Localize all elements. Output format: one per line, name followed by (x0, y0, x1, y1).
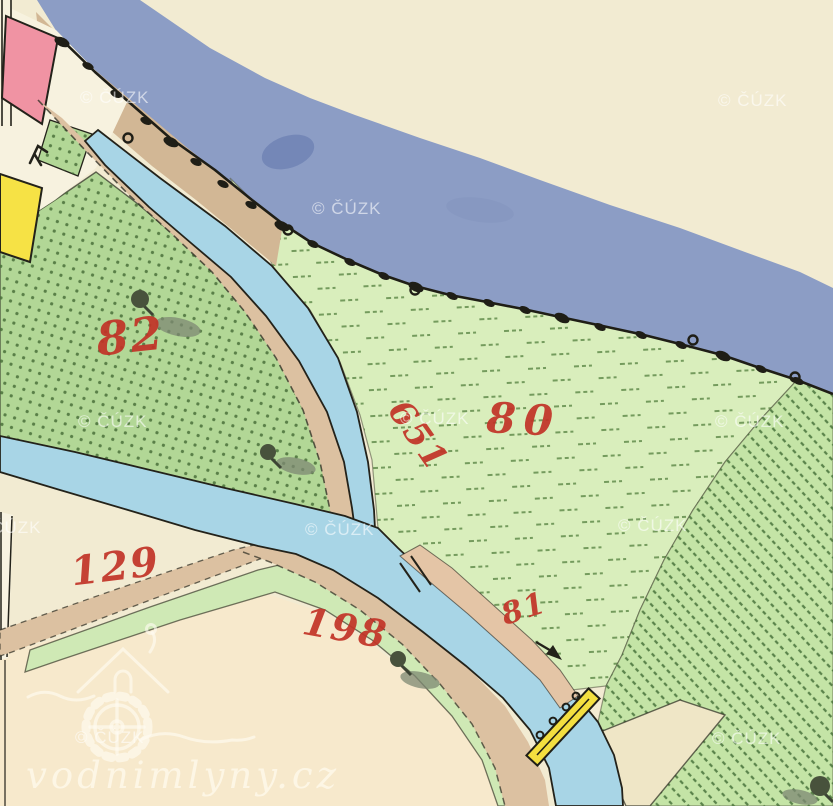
tree-crown (260, 444, 276, 460)
cuzk-watermark: © ČÚZK (400, 409, 470, 428)
cuzk-watermark: © ČÚZK (312, 199, 382, 218)
tree-crown (131, 290, 149, 308)
cuzk-watermark: © ČÚZK (0, 518, 42, 537)
parcel-number-80: 80 (484, 393, 562, 446)
tree-crown (390, 651, 406, 667)
cuzk-watermark: © ČÚZK (305, 520, 375, 539)
parcel-number-82: 82 (93, 306, 167, 367)
cuzk-watermark: © ČÚZK (715, 412, 785, 431)
cuzk-watermark: © ČÚZK (718, 91, 788, 110)
cuzk-watermark: © ČÚZK (712, 729, 782, 748)
map-canvas: 82 80 651 81 129 198 © ČÚZK© ČÚZK© ČÚZK©… (0, 0, 833, 806)
cuzk-watermark: © ČÚZK (80, 88, 150, 107)
cadastral-map-screenshot: 82 80 651 81 129 198 © ČÚZK© ČÚZK© ČÚZK©… (0, 0, 833, 806)
logo-text: vodnimlyny.cz (26, 754, 340, 797)
cuzk-watermark: © ČÚZK (618, 516, 688, 535)
cuzk-watermark: © ČÚZK (78, 412, 148, 431)
tree-crown (810, 776, 830, 796)
